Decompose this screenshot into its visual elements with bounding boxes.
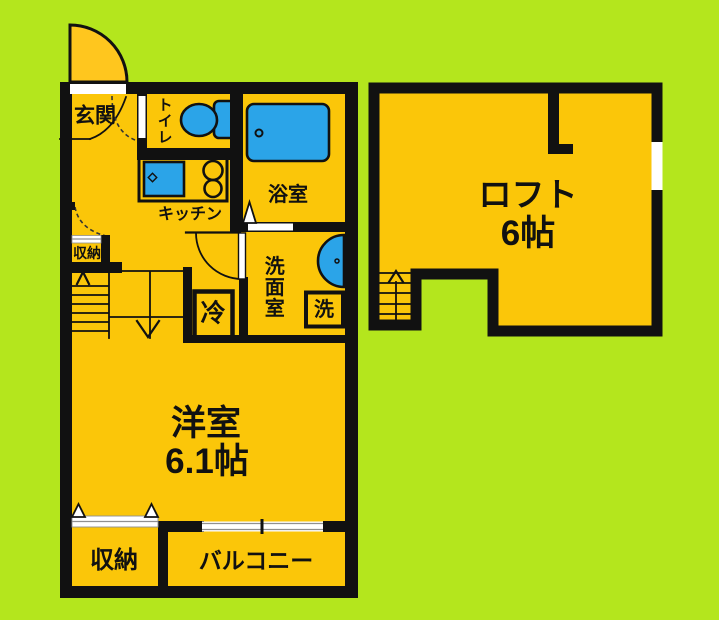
label-washer: 洗 xyxy=(314,300,334,320)
window-wall-left xyxy=(158,521,204,532)
hall-door-leaf xyxy=(239,233,246,279)
bath-door-opening xyxy=(248,224,293,231)
room-label-balcony: バルコニー xyxy=(199,549,314,572)
room-label-kitchen: キッチン xyxy=(158,207,222,223)
loft-partition-wall-h xyxy=(548,144,573,154)
room-label-genkan: 玄関 xyxy=(74,105,116,126)
fridge-wall xyxy=(183,267,192,343)
balcony-window-tick xyxy=(261,519,264,534)
room-size-loft: 6帖 xyxy=(501,216,555,252)
room-label-toilet: トイレ xyxy=(156,97,171,145)
entrance-opening xyxy=(70,84,126,94)
entrance-door xyxy=(70,25,127,82)
loft-window xyxy=(652,142,663,190)
lower-partition-wall xyxy=(183,335,358,343)
wall-stub xyxy=(60,202,75,210)
toilet-bowl xyxy=(181,104,217,136)
room-label-closet: 収納 xyxy=(90,549,138,573)
bathtub xyxy=(247,104,329,161)
window-wall-right xyxy=(323,521,345,532)
floorplan-drawing xyxy=(0,0,719,620)
outer-wall-left xyxy=(60,82,72,598)
toilet-bottom-wall xyxy=(137,148,243,160)
room-label-main-room: 洋室 xyxy=(171,406,241,442)
hall-closet-sliding-door xyxy=(72,236,101,244)
label-fridge: 冷 xyxy=(200,301,225,327)
room-label-loft: ロフト xyxy=(479,178,578,212)
room-size-main-room: 6.1帖 xyxy=(165,444,249,480)
hall-closet-bottom-wall xyxy=(60,262,122,273)
outer-wall-bottom xyxy=(60,586,358,598)
floorplan-canvas: 玄関 トイレ キッチン 浴室 洗面室 洗 冷 収納 洋室 6.1帖 収納 バルコ… xyxy=(0,0,719,620)
room-label-bathroom: 浴室 xyxy=(268,185,308,205)
bath-partition-wall xyxy=(230,94,243,232)
room-label-washroom: 洗面室 xyxy=(262,256,282,319)
washroom-wall xyxy=(239,277,248,335)
room-label-hall-closet: 収納 xyxy=(73,246,101,260)
hall-closet-right-wall xyxy=(101,235,110,273)
toilet-door xyxy=(139,96,146,138)
